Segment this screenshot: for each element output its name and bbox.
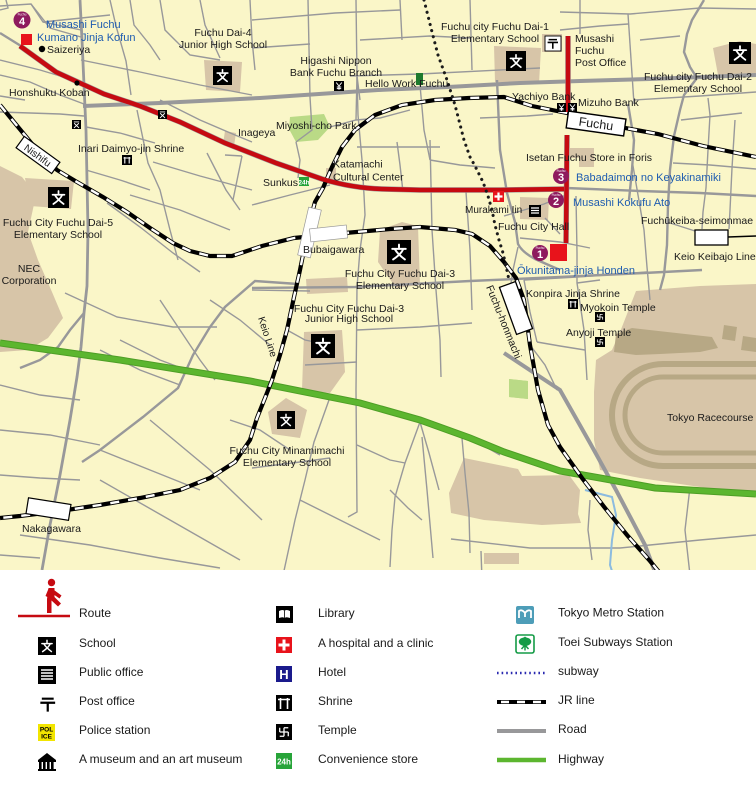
svg-text:Fuchu city Fuchu Dai-2: Fuchu city Fuchu Dai-2 <box>644 71 752 83</box>
svg-text:Convenience store: Convenience store <box>318 752 418 766</box>
svg-text:Tokyo Racecourse: Tokyo Racecourse <box>667 412 754 424</box>
svg-text:2: 2 <box>553 196 559 208</box>
svg-text:Isetan Fuchu Store in Foris: Isetan Fuchu Store in Foris <box>526 152 652 164</box>
svg-text:Route: Route <box>79 606 111 620</box>
svg-text:24h: 24h <box>277 758 291 767</box>
svg-text:Inari Daimyo-jin Shrine: Inari Daimyo-jin Shrine <box>78 143 184 155</box>
svg-text:POL: POL <box>40 727 53 734</box>
svg-text:Temple: Temple <box>318 723 357 737</box>
svg-text:Nakagawara: Nakagawara <box>22 523 81 535</box>
svg-text:Post Office: Post Office <box>575 57 626 69</box>
svg-text:Corporation: Corporation <box>2 275 57 287</box>
svg-text:Junior High School: Junior High School <box>179 39 267 51</box>
svg-text:Bubaigawara: Bubaigawara <box>303 244 364 256</box>
svg-text:Musashi Kokufu Ato: Musashi Kokufu Ato <box>573 197 670 209</box>
svg-text:Public office: Public office <box>79 665 144 679</box>
svg-text:Higashi Nippon: Higashi Nippon <box>300 55 371 67</box>
svg-text:Murakami Iin: Murakami Iin <box>465 205 522 216</box>
svg-text:Konpira Jinja Shrine: Konpira Jinja Shrine <box>526 288 620 300</box>
svg-text:Miyoshi-cho Park: Miyoshi-cho Park <box>276 120 357 132</box>
svg-text:Babadaimon no Keyakinamiki: Babadaimon no Keyakinamiki <box>576 172 721 184</box>
svg-text:subway: subway <box>558 664 599 678</box>
svg-text:Police station: Police station <box>79 723 150 737</box>
svg-text:Saizeriya: Saizeriya <box>47 44 90 56</box>
svg-text:Fuchu Dai-4: Fuchu Dai-4 <box>194 27 251 39</box>
svg-text:Fuchu City Fuchu Dai-3: Fuchu City Fuchu Dai-3 <box>345 268 455 280</box>
svg-text:Tokyo Metro Station: Tokyo Metro Station <box>558 606 664 620</box>
svg-text:Musashi Fuchu: Musashi Fuchu <box>46 19 121 31</box>
svg-text:Fuchu: Fuchu <box>557 169 566 173</box>
svg-text:Fuchu City Minamimachi: Fuchu City Minamimachi <box>230 445 345 457</box>
svg-text:Elementary School: Elementary School <box>654 83 742 95</box>
svg-text:Hotel: Hotel <box>318 665 346 679</box>
svg-text:Junior High School: Junior High School <box>305 313 393 325</box>
svg-text:Highway: Highway <box>558 752 604 766</box>
svg-text:A hospital and a clinic: A hospital and a clinic <box>318 636 433 650</box>
svg-text:Katamachi: Katamachi <box>333 159 383 171</box>
svg-text:Elementary School: Elementary School <box>243 457 331 469</box>
svg-text:4: 4 <box>19 16 26 28</box>
svg-text:Myokoin Temple: Myokoin Temple <box>580 302 656 314</box>
svg-text:Library: Library <box>318 606 355 620</box>
svg-text:Kumano Jinja Kofun: Kumano Jinja Kofun <box>37 32 135 44</box>
svg-text:Elementary School: Elementary School <box>451 33 539 45</box>
svg-text:Fuchu City Hall: Fuchu City Hall <box>498 221 569 233</box>
svg-text:Road: Road <box>558 722 587 736</box>
svg-text:Fuchu: Fuchu <box>18 13 27 17</box>
svg-text:Shrine: Shrine <box>318 694 353 708</box>
svg-text:Fuchu: Fuchu <box>575 45 604 57</box>
svg-text:Fuchūkeiba-seimonmae: Fuchūkeiba-seimonmae <box>641 215 753 227</box>
svg-text:Musashi: Musashi <box>575 33 614 45</box>
svg-text:Fuchu city Fuchu Dai-1: Fuchu city Fuchu Dai-1 <box>441 21 549 33</box>
svg-text:Elementary School: Elementary School <box>14 229 102 241</box>
svg-text:Inageya: Inageya <box>238 127 276 139</box>
svg-text:Anyoji Temple: Anyoji Temple <box>566 327 631 339</box>
svg-text:Keio Keibajo Line: Keio Keibajo Line <box>674 251 756 263</box>
svg-text:Mizuho Bank: Mizuho Bank <box>578 97 639 109</box>
svg-text:JR line: JR line <box>558 693 595 707</box>
svg-text:ICE: ICE <box>41 734 53 741</box>
svg-text:Sunkus: Sunkus <box>263 177 298 189</box>
svg-text:Honshuku Koban: Honshuku Koban <box>9 87 90 99</box>
svg-text:Fuchu City Fuchu Dai-5: Fuchu City Fuchu Dai-5 <box>3 217 113 229</box>
svg-text:NEC: NEC <box>18 263 41 275</box>
svg-text:Cultural Center: Cultural Center <box>333 172 404 184</box>
svg-text:24h: 24h <box>298 180 309 187</box>
svg-text:Yachiyo Bank: Yachiyo Bank <box>512 91 576 103</box>
svg-text:Hello Work Fuchu: Hello Work Fuchu <box>365 78 448 90</box>
svg-text:Ōkunitama-jinja Honden: Ōkunitama-jinja Honden <box>517 265 635 277</box>
svg-text:Toei Subways Station: Toei Subways Station <box>558 635 673 649</box>
svg-text:Fuchu: Fuchu <box>552 193 561 197</box>
svg-text:Elementary School: Elementary School <box>356 280 444 292</box>
svg-text:School: School <box>79 636 116 650</box>
svg-text:A museum and an art museum: A museum and an art museum <box>79 752 242 766</box>
svg-text:H: H <box>279 667 288 682</box>
svg-text:3: 3 <box>558 172 564 184</box>
svg-text:Post office: Post office <box>79 694 135 708</box>
svg-text:1: 1 <box>537 249 543 261</box>
svg-text:Fuchu: Fuchu <box>536 246 545 250</box>
